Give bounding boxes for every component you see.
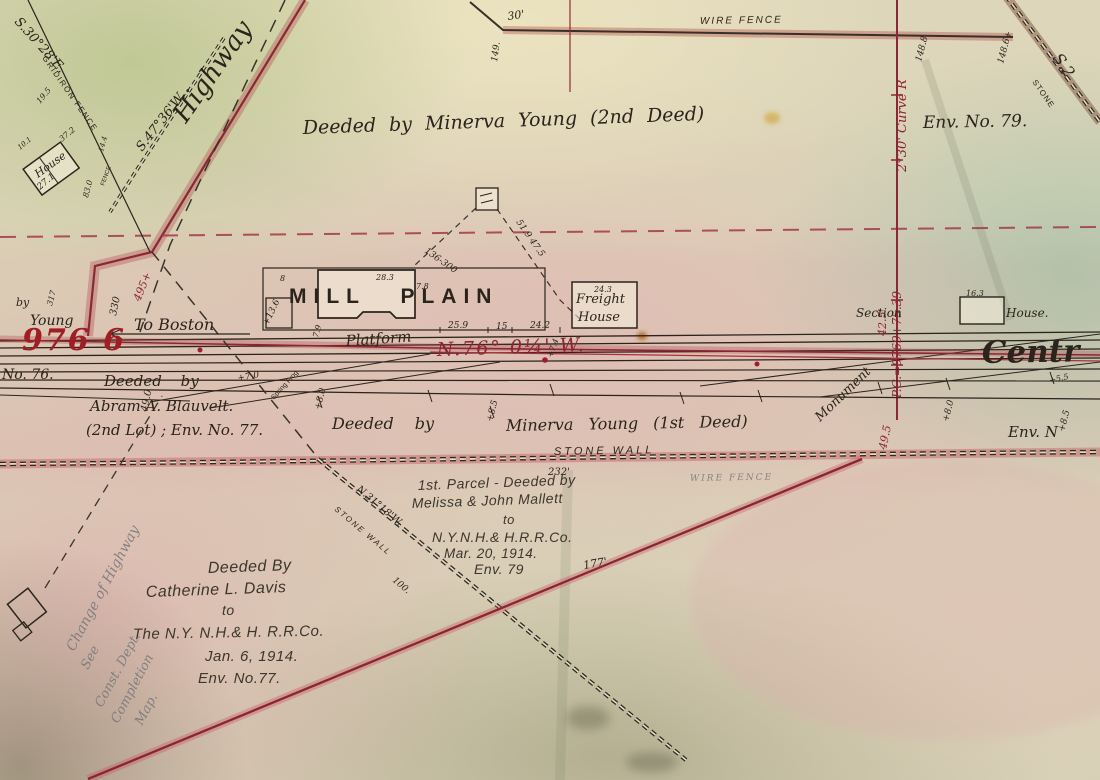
dim-16-3: 16.3: [966, 289, 984, 298]
minerva1-line-a: Deeded by: [331, 414, 435, 433]
dim-30: 30': [507, 8, 526, 23]
young-label: Young: [30, 313, 73, 329]
dim-317: 317: [45, 289, 58, 307]
section-house-label-2: House.: [1005, 306, 1049, 320]
section-house-building: [960, 297, 1004, 324]
section-house-label-1: Section: [856, 306, 902, 320]
stone-tr-label: STONE: [1030, 78, 1056, 110]
freight-house-label-2: House: [577, 310, 620, 325]
mill-plain-label: MILL PLAIN: [289, 285, 498, 308]
mallett-line5: Mar. 20, 1914.: [444, 546, 538, 561]
bottom-left-building: [0, 588, 51, 641]
pencil-line2: See: [78, 643, 103, 672]
dim-49-5: 49.5: [876, 424, 894, 452]
central-label: Centr: [982, 333, 1083, 371]
hut-building: [476, 188, 498, 210]
dim-5-5: +5.5: [1049, 372, 1070, 385]
mallett-line3: to: [503, 512, 515, 527]
dim-83-0: 83.0: [81, 179, 94, 199]
dim-15: 15: [496, 322, 508, 332]
davis-line1: Deeded By: [208, 557, 293, 577]
dim-28-3: 28.3: [375, 273, 394, 282]
dim-8-0a: +8.0: [313, 387, 328, 411]
davis-line3: to: [222, 602, 235, 618]
dim-136-300: 136-300: [422, 246, 459, 276]
wire-fence-faint-label: WIRE FENCE: [690, 473, 773, 484]
dim-495: 495+: [130, 270, 154, 304]
dim-24-2: 24.2: [529, 321, 550, 331]
dim-8-5b: +8.5: [1057, 409, 1072, 433]
blauvelt-line3: (2nd Lot) ; Env. No. 77.: [86, 421, 263, 439]
freight-house-label-1: Freight: [575, 292, 626, 307]
bearing-n3118w: N.31°18'W.: [353, 483, 404, 528]
stone-wall-mid-label: STONE WALL: [554, 444, 655, 458]
davis-line4: The N.Y. N.H.& H. R.R.Co.: [133, 623, 324, 643]
deed-minerva2-label: Deeded by Minerva Young (2nd Deed): [301, 103, 704, 139]
mallett-line2: Melissa & John Mallett: [412, 490, 564, 511]
dim-14-4: 14.4: [97, 135, 109, 152]
dim-7-9: 7.9: [311, 324, 323, 339]
dim-13-6: +13.6: [262, 298, 283, 327]
dim-8: 8: [280, 274, 285, 283]
to-boston-label: To Boston: [134, 315, 214, 334]
by-label: by: [16, 296, 30, 309]
dim-149: 149.: [490, 41, 503, 62]
dim-51-9: 51.9 47.5: [514, 218, 547, 259]
env-bottom-right-label: Env. N: [1007, 423, 1059, 441]
davis-line6: Env. No.77.: [198, 670, 281, 687]
dim-8-0b: +8.0: [941, 399, 956, 423]
blauvelt-line2: Abram A. Blauvelt.: [88, 397, 233, 415]
wire-fence-label: WIRE FENCE: [700, 15, 783, 27]
dim-19-5: 19.5: [35, 86, 53, 105]
highway-boundary-line: [88, 0, 305, 336]
dim-25-9: 25.9: [447, 321, 468, 331]
env79-top-label: Env. No. 79.: [922, 111, 1028, 133]
dim-7-8: 7.8: [416, 282, 429, 291]
dim-10-1: 10.1: [16, 135, 33, 151]
highway-label: Highway: [167, 15, 259, 129]
no76-label: No. 76.: [1, 367, 54, 383]
dim-330: 330: [108, 295, 123, 317]
dim-8-5a: +8.5: [485, 399, 500, 423]
dim-100: 100.: [390, 576, 412, 597]
curve-label: 2°30' Curve R: [895, 79, 910, 173]
mallett-line6: Env. 79: [474, 561, 524, 577]
monument-label: Monument: [812, 364, 875, 426]
blauvelt-line1: Deeded by: [103, 372, 199, 390]
bearing-n76w: N.76° 0¼' W.: [435, 334, 586, 361]
fence-small-label: FENCE: [100, 166, 113, 187]
mallett-line4: N.Y.N.H.& H.R.R.Co.: [432, 529, 572, 545]
hut-dashed-right: [497, 209, 583, 322]
dim-24-3: 24.3: [593, 285, 612, 294]
minerva1-line-b: Minerva Young (1st Deed): [505, 412, 748, 435]
davis-line5: Jan. 6, 1914.: [204, 648, 298, 665]
survey-map-canvas: S.30°28'E. GRIDIRON FENCE S.47°36'W. Hig…: [0, 0, 1100, 780]
dim-7-0: +7.0: [237, 370, 261, 384]
davis-line2: Catherine L. Davis: [146, 579, 287, 601]
dim-37-2: 37.2: [58, 125, 77, 143]
